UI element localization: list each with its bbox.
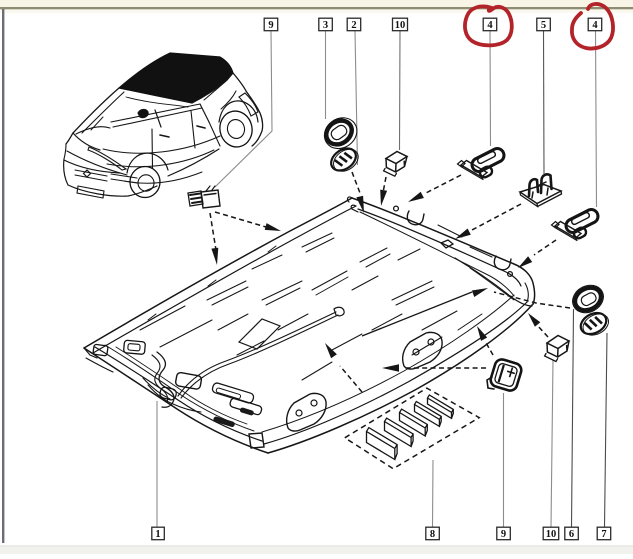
svg-text:6: 6: [569, 529, 574, 540]
svg-text:3: 3: [323, 20, 328, 31]
svg-text:9: 9: [268, 20, 273, 31]
svg-text:9: 9: [501, 529, 506, 540]
svg-text:1: 1: [155, 529, 160, 540]
svg-text:2: 2: [351, 20, 356, 31]
svg-text:7: 7: [601, 529, 606, 540]
svg-text:8: 8: [430, 529, 435, 540]
svg-text:4: 4: [487, 20, 493, 31]
svg-text:5: 5: [541, 20, 546, 31]
svg-text:10: 10: [546, 529, 557, 540]
svg-text:10: 10: [395, 20, 406, 31]
svg-text:4: 4: [592, 20, 598, 31]
